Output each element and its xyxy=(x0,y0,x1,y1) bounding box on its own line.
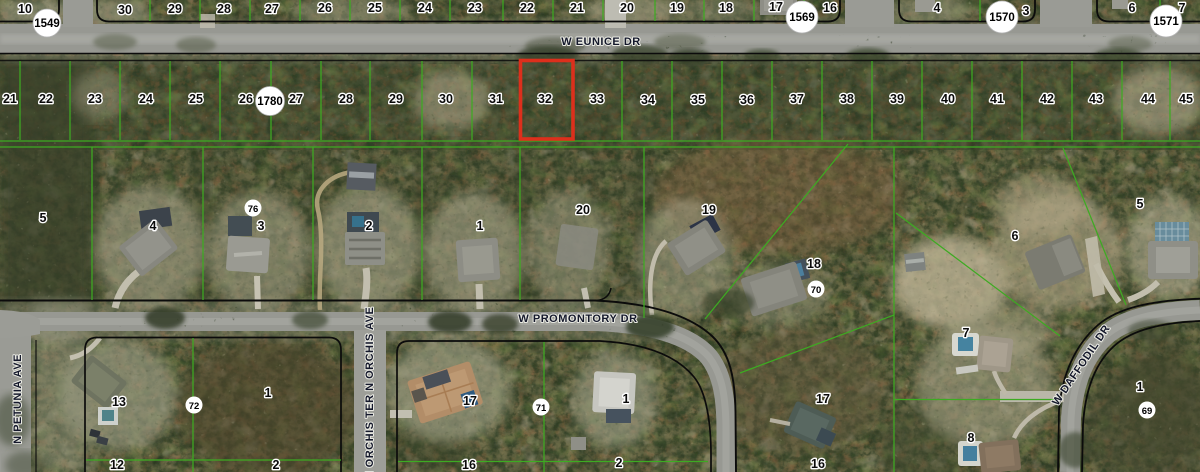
svg-text:1: 1 xyxy=(623,392,630,406)
svg-text:16: 16 xyxy=(462,458,476,472)
svg-text:6: 6 xyxy=(1129,1,1136,15)
svg-text:8: 8 xyxy=(968,431,975,445)
svg-text:21: 21 xyxy=(3,92,17,106)
svg-text:42: 42 xyxy=(1040,92,1054,106)
svg-text:7: 7 xyxy=(963,326,970,340)
svg-text:16: 16 xyxy=(811,457,825,471)
svg-text:W PROMONTORY DR: W PROMONTORY DR xyxy=(518,313,637,325)
svg-text:22: 22 xyxy=(39,92,53,106)
svg-text:5: 5 xyxy=(1137,197,1144,211)
svg-text:36: 36 xyxy=(740,93,754,107)
svg-text:21: 21 xyxy=(570,1,584,15)
svg-text:1569: 1569 xyxy=(789,12,815,24)
svg-text:13: 13 xyxy=(112,395,126,409)
svg-text:30: 30 xyxy=(118,3,132,17)
svg-text:26: 26 xyxy=(318,1,332,15)
svg-text:27: 27 xyxy=(289,92,303,106)
svg-text:29: 29 xyxy=(168,2,182,16)
svg-text:1570: 1570 xyxy=(989,12,1015,24)
svg-text:20: 20 xyxy=(620,1,634,15)
svg-text:76: 76 xyxy=(248,204,259,215)
svg-text:31: 31 xyxy=(489,92,503,106)
svg-text:41: 41 xyxy=(990,92,1004,106)
svg-text:17: 17 xyxy=(769,0,783,14)
svg-text:2: 2 xyxy=(273,458,280,472)
svg-text:16: 16 xyxy=(823,1,837,15)
svg-text:45: 45 xyxy=(1179,92,1193,106)
svg-text:24: 24 xyxy=(139,92,153,106)
svg-text:23: 23 xyxy=(468,1,482,15)
svg-text:28: 28 xyxy=(217,2,231,16)
svg-text:1: 1 xyxy=(265,386,272,400)
svg-text:3: 3 xyxy=(1023,4,1030,18)
svg-text:27: 27 xyxy=(265,2,279,16)
svg-text:4: 4 xyxy=(150,219,157,233)
svg-text:2: 2 xyxy=(616,456,623,470)
svg-text:17: 17 xyxy=(463,394,477,408)
svg-text:29: 29 xyxy=(389,92,403,106)
svg-text:6: 6 xyxy=(1012,229,1019,243)
svg-text:30: 30 xyxy=(439,92,453,106)
svg-text:25: 25 xyxy=(368,1,382,15)
svg-text:70: 70 xyxy=(811,285,822,296)
svg-text:N PETUNIA AVE: N PETUNIA AVE xyxy=(12,354,24,444)
svg-text:1549: 1549 xyxy=(34,18,60,30)
svg-text:1: 1 xyxy=(477,219,484,233)
svg-text:1: 1 xyxy=(1137,380,1144,394)
svg-text:43: 43 xyxy=(1089,92,1103,106)
svg-text:28: 28 xyxy=(339,92,353,106)
svg-text:25: 25 xyxy=(189,92,203,106)
svg-text:5: 5 xyxy=(40,211,47,225)
svg-text:18: 18 xyxy=(719,1,733,15)
svg-text:40: 40 xyxy=(941,92,955,106)
svg-text:20: 20 xyxy=(576,203,590,217)
svg-text:26: 26 xyxy=(239,92,253,106)
svg-text:22: 22 xyxy=(520,1,534,15)
svg-text:34: 34 xyxy=(641,93,655,107)
svg-text:19: 19 xyxy=(670,1,684,15)
svg-text:1780: 1780 xyxy=(257,96,283,108)
svg-text:18: 18 xyxy=(807,257,821,271)
svg-text:N ORCHIS TER N ORCHIS AVE: N ORCHIS TER N ORCHIS AVE xyxy=(364,307,376,472)
svg-text:69: 69 xyxy=(1142,406,1153,417)
svg-text:7: 7 xyxy=(1179,1,1186,15)
svg-text:37: 37 xyxy=(790,92,804,106)
svg-text:39: 39 xyxy=(890,92,904,106)
svg-text:71: 71 xyxy=(536,403,547,414)
svg-text:3: 3 xyxy=(258,219,265,233)
svg-text:W EUNICE DR: W EUNICE DR xyxy=(561,36,640,48)
svg-text:1571: 1571 xyxy=(1153,16,1179,28)
svg-text:32: 32 xyxy=(538,92,552,106)
svg-text:17: 17 xyxy=(816,392,830,406)
svg-text:10: 10 xyxy=(18,2,32,16)
svg-text:35: 35 xyxy=(691,93,705,107)
svg-text:2: 2 xyxy=(366,219,373,233)
svg-text:19: 19 xyxy=(702,203,716,217)
svg-text:24: 24 xyxy=(418,1,432,15)
svg-text:33: 33 xyxy=(590,92,604,106)
svg-text:38: 38 xyxy=(840,92,854,106)
svg-text:23: 23 xyxy=(88,92,102,106)
svg-text:4: 4 xyxy=(934,1,941,15)
svg-text:44: 44 xyxy=(1141,92,1155,106)
svg-text:12: 12 xyxy=(110,458,124,472)
svg-text:72: 72 xyxy=(189,401,200,412)
